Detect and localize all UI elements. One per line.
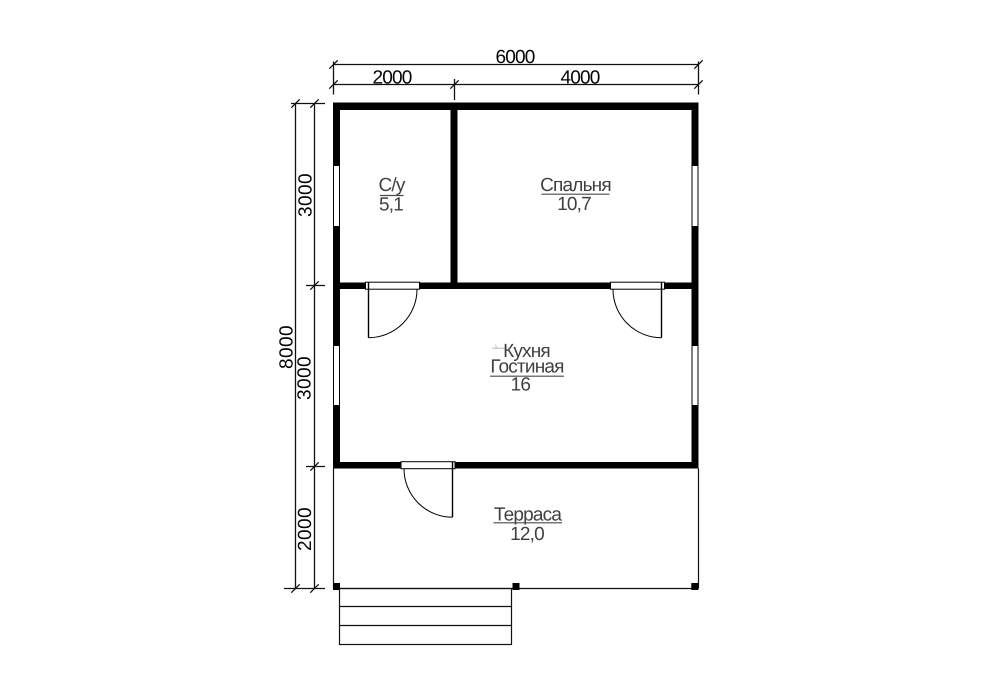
- svg-text:С/у: С/у: [378, 175, 405, 196]
- svg-text:2000: 2000: [372, 68, 411, 89]
- svg-text:Спальня: Спальня: [540, 175, 611, 196]
- svg-text:10,7: 10,7: [557, 194, 591, 215]
- svg-text:5,1: 5,1: [379, 195, 403, 216]
- svg-text:3000: 3000: [295, 356, 316, 400]
- svg-text:6000: 6000: [495, 47, 534, 68]
- svg-text:2000: 2000: [295, 507, 316, 551]
- svg-text:4000: 4000: [560, 68, 599, 89]
- svg-text:12,0: 12,0: [510, 524, 544, 545]
- svg-text:16: 16: [511, 375, 531, 396]
- svg-text:3000: 3000: [296, 173, 317, 217]
